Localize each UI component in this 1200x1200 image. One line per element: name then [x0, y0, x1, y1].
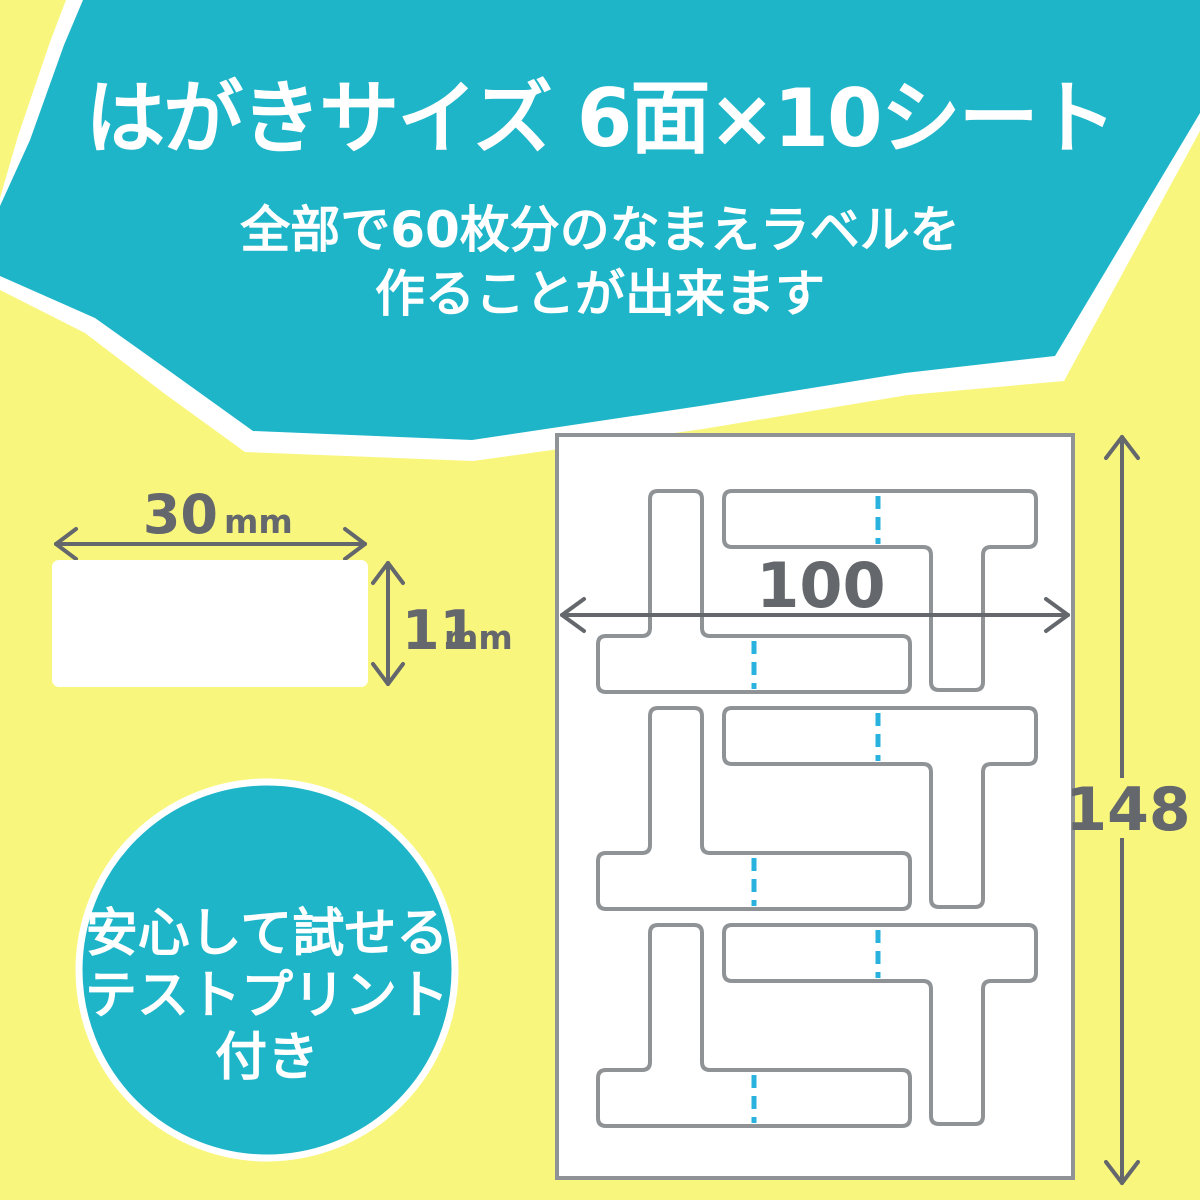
label-width-unit: mm	[224, 502, 293, 541]
label-height-arrow	[373, 563, 403, 684]
label-width-value: 30	[143, 483, 218, 546]
test-print-badge: 安心して試せる テストプリント 付き	[79, 782, 455, 1158]
label-height-unit: mm	[444, 618, 513, 657]
banner-subtitle-line2: 作ることが出来ます	[375, 265, 825, 323]
label-size-diagram: 30 mm 11 mm	[52, 483, 513, 687]
banner-subtitle-line1: 全部で60枚分のなまえラベルを	[239, 201, 960, 259]
badge-line1: 安心して試せる	[86, 904, 448, 964]
label-rectangle	[52, 560, 368, 687]
sheet-width-label: 100	[756, 549, 885, 622]
sheet-diagram: 100 148	[557, 435, 1191, 1183]
badge-line3: 付き	[215, 1028, 319, 1088]
badge-line2: テストプリント	[85, 966, 449, 1026]
product-graphic: はがきサイズ 6面×10シート 全部で60枚分のなまえラベルを 作ることが出来ま…	[0, 0, 1200, 1200]
sheet-height-label: 148	[1065, 775, 1190, 845]
graphic-canvas: はがきサイズ 6面×10シート 全部で60枚分のなまえラベルを 作ることが出来ま…	[0, 0, 1200, 1200]
banner-title: はがきサイズ 6面×10シート	[85, 72, 1114, 165]
